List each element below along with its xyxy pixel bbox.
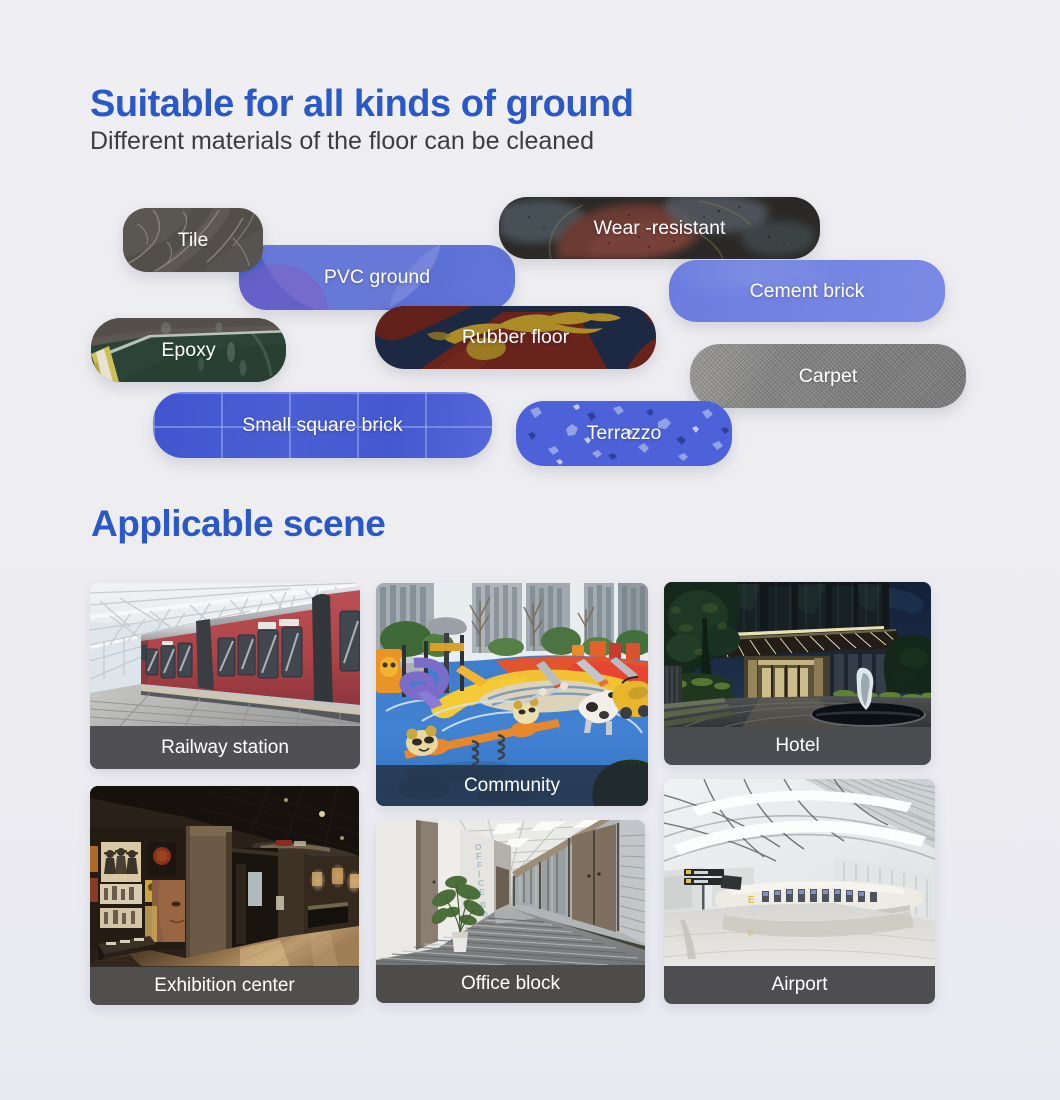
svg-text:E: E [748,895,755,906]
svg-text:F: F [748,929,754,939]
